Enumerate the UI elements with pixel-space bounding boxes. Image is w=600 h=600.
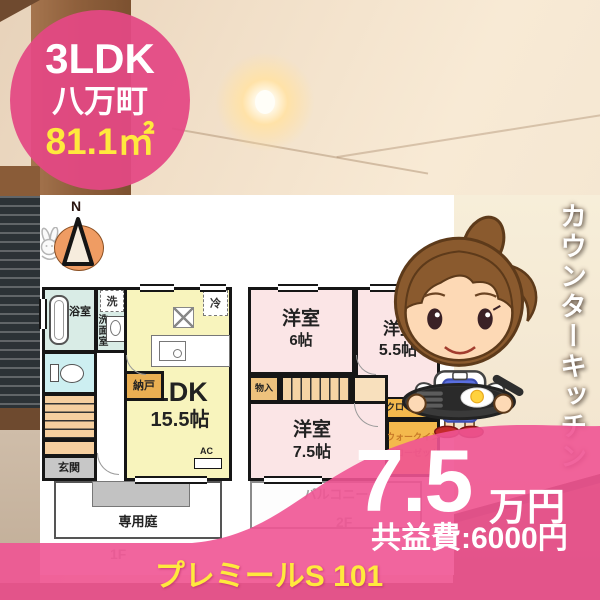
rent-amount: 7.5 xyxy=(355,437,471,525)
bath-label: 浴室 xyxy=(69,306,91,318)
ac-label: AC xyxy=(200,447,213,457)
window xyxy=(264,476,322,484)
west3-label: 洋室 xyxy=(293,421,331,442)
fridge-label: 冷 xyxy=(210,295,221,311)
window xyxy=(135,476,207,484)
floor2-label: 2F xyxy=(336,515,352,530)
north-arrow-icon xyxy=(56,217,100,269)
floor1-label: 1F xyxy=(110,547,126,562)
kitchen-sink-icon xyxy=(159,341,186,361)
toilet-icon xyxy=(50,364,59,382)
area-label: 81.1㎡ xyxy=(45,122,154,163)
window-blinds-photo xyxy=(0,166,40,600)
bathtub-icon xyxy=(49,295,69,345)
closet-small-label: 物入 xyxy=(255,384,273,394)
garden-label: 専用庭 xyxy=(118,515,157,529)
fridge-box: 冷 xyxy=(203,290,228,316)
window xyxy=(39,299,47,329)
garden-deck xyxy=(92,481,190,507)
window xyxy=(278,284,318,292)
washer-label: 洗 xyxy=(107,293,118,309)
table-x-icon xyxy=(173,307,194,328)
compass-icon: N xyxy=(40,195,120,279)
window xyxy=(140,284,174,292)
property-badge: 3LDK 八万町 81.1㎡ xyxy=(10,10,190,190)
ac-box xyxy=(194,458,222,469)
west1-size: 6帖 xyxy=(289,333,312,350)
stairs-1f-icon xyxy=(42,393,97,441)
listing-image: N 浴室 洗 洗面室 冷 LDK 15.5帖 AC 納戸 xyxy=(0,0,600,600)
room-bath xyxy=(42,287,97,353)
west3-size: 7.5帖 xyxy=(293,444,331,462)
eye-right xyxy=(478,308,493,329)
north-label: N xyxy=(71,199,81,214)
eye-left xyxy=(427,308,442,329)
west1-label: 洋室 xyxy=(282,310,320,331)
storage-label: 納戸 xyxy=(133,380,155,392)
entrance-label: 玄関 xyxy=(58,462,80,474)
stairs-2f-icon xyxy=(280,375,352,403)
sink-icon xyxy=(106,316,125,342)
ceiling-light xyxy=(255,90,275,114)
common-fee: 共益費:6000円 xyxy=(371,513,568,557)
town-label: 八万町 xyxy=(52,83,148,120)
layout-label: 3LDK xyxy=(45,37,155,81)
hand xyxy=(494,395,512,413)
property-name: プレミールS 101 xyxy=(149,551,389,595)
mascot-character xyxy=(378,206,550,448)
door-arc xyxy=(97,453,119,475)
room-toilet xyxy=(42,351,97,395)
wall-corner-line xyxy=(337,114,600,158)
hand xyxy=(408,395,426,413)
ldk-size-label: 15.5帖 xyxy=(151,409,210,431)
washer-box: 洗 xyxy=(100,290,124,312)
window xyxy=(200,284,226,292)
feature-banner: カウンターキッチン xyxy=(552,202,591,472)
